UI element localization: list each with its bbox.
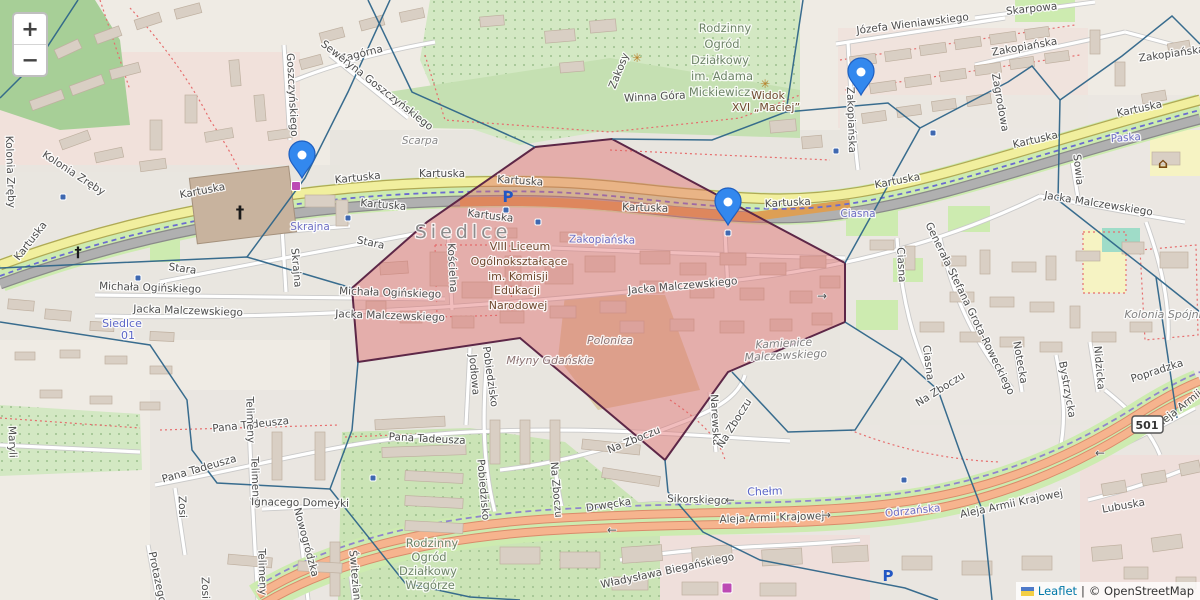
street-label: Paska: [1110, 131, 1141, 145]
street-label: Kolonia Zręby: [3, 136, 18, 209]
shop-icon: [292, 182, 301, 191]
oneway-arrow: ←: [725, 493, 735, 507]
street-label: Zosi: [176, 496, 189, 518]
osm-attribution: © OpenStreetMap: [1089, 584, 1194, 598]
poi-label: Edukacji: [494, 284, 540, 297]
zoom-out-button[interactable]: −: [14, 45, 46, 75]
street-label: Maryli: [5, 426, 18, 458]
poi-label: XVI „Maciej”: [732, 101, 800, 114]
garden-area-label: Mickiewicza: [689, 85, 757, 99]
bus-stop-icon: [901, 477, 907, 483]
garden-area-label: Wzgórze: [405, 578, 455, 592]
oneway-arrow: →: [821, 508, 831, 522]
street-label: Zosi: [199, 577, 212, 599]
street-label: Kartuska: [419, 168, 465, 180]
garden-area-label: Działkowy: [399, 564, 457, 578]
parking-icon: P: [503, 188, 514, 206]
garden-area-label: Rodzinny: [406, 536, 459, 550]
transit-label: Chełm: [747, 484, 783, 498]
ukraine-flag-icon: [1021, 587, 1034, 596]
tram-stop-icon: [135, 275, 141, 281]
garden-area-label: Działkowy: [691, 53, 749, 67]
area-label: Polonica: [587, 334, 633, 347]
tram-stop-icon: [833, 148, 839, 154]
oneway-arrow: ←: [1095, 446, 1105, 460]
tram-stop-icon: [60, 194, 66, 200]
svg-text:501: 501: [1136, 419, 1159, 432]
tram-stop-icon: [503, 207, 509, 213]
zoom-in-button[interactable]: +: [14, 14, 46, 45]
parking-icon: P: [883, 567, 894, 585]
tram-stop-icon: [345, 215, 351, 221]
transit-label: 01: [121, 329, 135, 342]
street-label: Ciasna: [894, 247, 908, 283]
street-label: Ciasna: [840, 208, 875, 220]
tram-stop-icon: [930, 130, 936, 136]
attribution-bar: Leaflet | © OpenStreetMap: [1016, 582, 1200, 600]
flower-icon: ✳: [632, 51, 642, 65]
street-label: Kartuska: [765, 196, 812, 210]
street-label: Kartuska: [622, 201, 668, 215]
poi-label: Ogólnokształcące: [471, 255, 568, 268]
church-cross-icon: †: [236, 203, 245, 223]
street-label: Telimeny: [243, 395, 257, 443]
tram-stop-icon: [725, 230, 731, 236]
garden-area-label: im. Adama: [691, 69, 753, 83]
attribution-separator: |: [1081, 584, 1085, 598]
poi-label: Narodowej: [489, 299, 548, 312]
street-label: Zakopiańska: [844, 87, 858, 154]
leaflet-link[interactable]: Leaflet: [1038, 584, 1077, 598]
area-label: Młyny Gdańskie: [506, 354, 594, 367]
school-icon: ⌂: [1158, 156, 1168, 172]
oneway-arrow: →: [817, 289, 827, 303]
tram-stop-icon: [535, 219, 541, 225]
poi-label: im. Komisji: [488, 270, 548, 283]
area-label: Kolonia Spójni: [1124, 308, 1200, 321]
shopping-cart-icon: [722, 583, 732, 593]
road-shield-501: 501: [1132, 416, 1163, 433]
map-canvas[interactable]: KartuskaKartuskaKartuskaKartuskaKartuska…: [0, 0, 1200, 600]
garden-area-label: Rodzinny: [699, 21, 752, 35]
church-cross-icon: †: [75, 245, 82, 261]
street-label: Skrajna: [290, 221, 330, 233]
garden-area-label: Ogród: [411, 550, 446, 564]
zoom-control: + −: [12, 12, 48, 77]
street-label: Telimeny: [255, 547, 269, 595]
street-label: Zakopiańska: [569, 233, 635, 246]
garden-area-label: Ogród: [704, 37, 739, 51]
bus-stop-icon: [370, 475, 376, 481]
oneway-arrow: ←: [607, 523, 617, 537]
poi-label: VIII Liceum: [490, 240, 550, 253]
locality-label: Scarpa: [402, 135, 438, 147]
flower-icon: ✳: [760, 77, 770, 91]
street-label: Sikorskiego: [667, 493, 727, 507]
